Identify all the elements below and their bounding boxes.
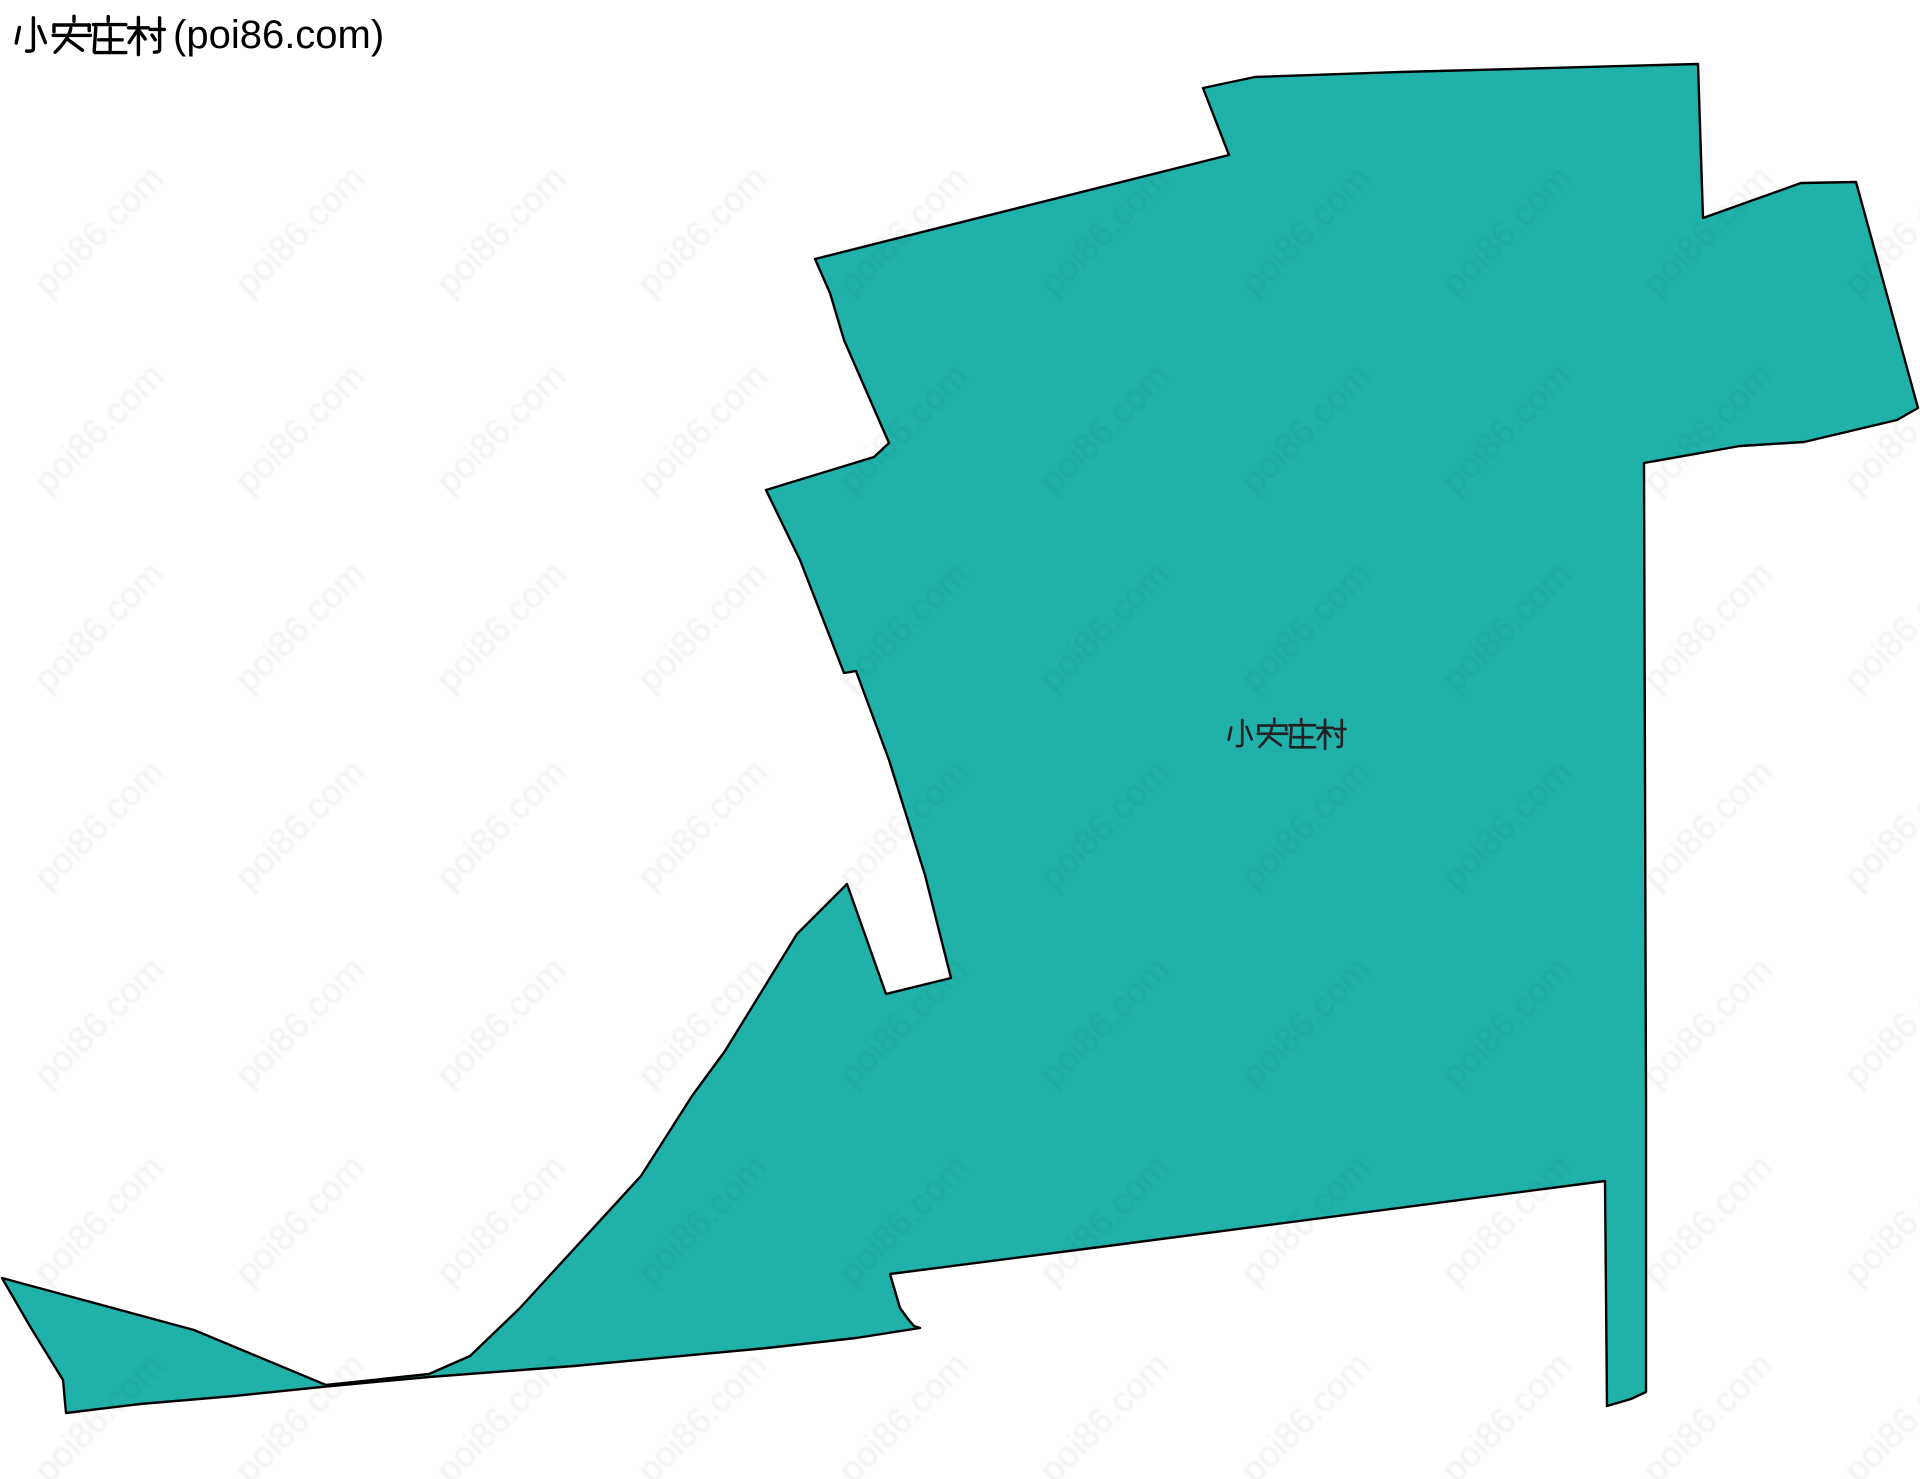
svg-text:(poi86.com): (poi86.com) [173,13,384,57]
